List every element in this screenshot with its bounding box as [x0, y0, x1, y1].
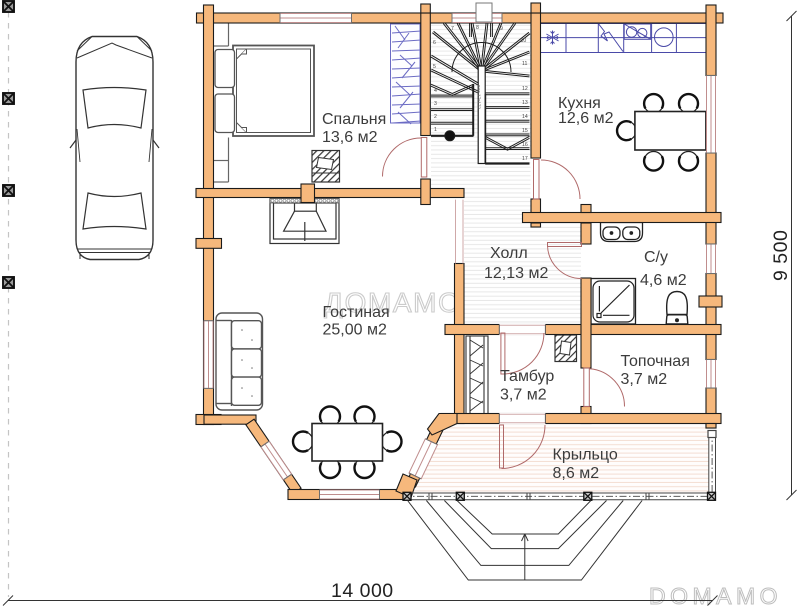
svg-text:8,6 м2: 8,6 м2 — [553, 465, 600, 482]
svg-text:17: 17 — [522, 156, 528, 162]
svg-text:2: 2 — [434, 114, 437, 120]
svg-text:под.17х172: под.17х172 — [477, 85, 482, 109]
svg-text:11: 11 — [522, 61, 527, 67]
svg-text:Спальня: Спальня — [322, 111, 386, 128]
svg-text:25,00 м2: 25,00 м2 — [323, 322, 387, 339]
svg-text:12,13 м2: 12,13 м2 — [484, 265, 548, 282]
svg-text:5: 5 — [433, 64, 436, 70]
svg-text:4,6 м2: 4,6 м2 — [640, 272, 687, 289]
svg-text:7: 7 — [451, 26, 454, 32]
svg-text:14 000: 14 000 — [331, 580, 394, 602]
svg-text:С/у: С/у — [644, 249, 668, 266]
svg-text:6: 6 — [433, 40, 436, 46]
svg-text:13: 13 — [522, 100, 528, 106]
svg-text:Гостиная: Гостиная — [323, 304, 390, 321]
svg-text:4: 4 — [434, 88, 437, 94]
svg-text:Топочная: Топочная — [621, 353, 690, 370]
svg-text:14: 14 — [522, 114, 528, 120]
svg-text:10: 10 — [521, 38, 527, 44]
svg-text:3: 3 — [434, 101, 437, 107]
svg-text:12,6 м2: 12,6 м2 — [558, 110, 614, 127]
svg-text:DOMAMO: DOMAMO — [649, 583, 782, 609]
svg-text:16: 16 — [522, 142, 528, 148]
svg-text:13,6 м2: 13,6 м2 — [322, 129, 378, 146]
svg-text:9: 9 — [500, 26, 503, 32]
svg-text:Крыльцо: Крыльцо — [553, 447, 618, 464]
svg-text:3,7 м2: 3,7 м2 — [500, 387, 547, 404]
svg-text:Тамбур: Тамбур — [500, 368, 554, 385]
svg-text:3,7 м2: 3,7 м2 — [621, 371, 668, 388]
svg-text:9 500: 9 500 — [770, 230, 792, 281]
svg-text:12: 12 — [522, 86, 528, 92]
svg-text:8: 8 — [476, 25, 479, 31]
svg-text:1: 1 — [434, 127, 437, 133]
svg-text:Холл: Холл — [490, 245, 528, 262]
svg-text:15: 15 — [522, 128, 528, 134]
